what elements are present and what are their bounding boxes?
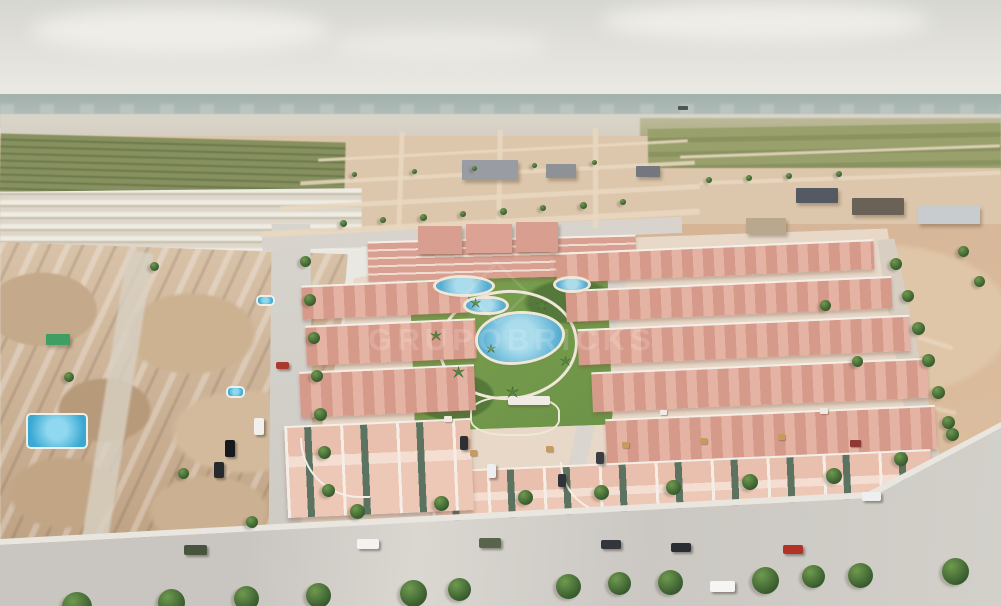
townhouse-row <box>301 278 468 319</box>
cloud <box>600 2 930 42</box>
pergola <box>508 396 550 405</box>
sea-glint <box>0 104 1001 114</box>
aerial-render: GRUPOBRICKS <box>0 0 1001 606</box>
cloud <box>330 30 550 60</box>
watermark-text: GRUPOBRICKS <box>352 322 672 362</box>
cloud <box>30 8 330 54</box>
townhouse-row <box>299 364 476 418</box>
